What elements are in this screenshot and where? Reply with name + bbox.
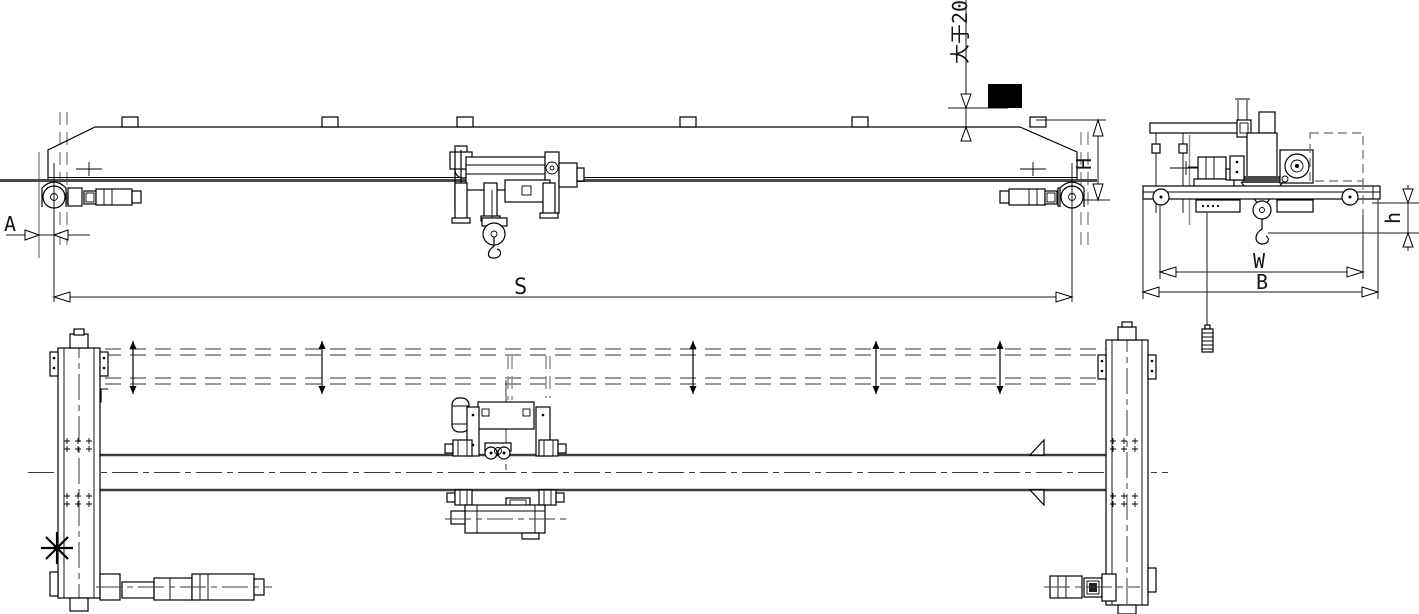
travel-drive-left-plan (96, 574, 272, 600)
festoon-cross-arm (1150, 123, 1247, 133)
dim-label-approach: A (4, 212, 16, 236)
dim-label-carriage-width: B (1256, 270, 1268, 294)
rail-clamp-mark-left (76, 162, 102, 176)
end-carriage-left-plan (41, 329, 272, 612)
travel-drive-right (1009, 189, 1045, 205)
front-elevation-view: 大于200 A S H (0, 0, 1110, 302)
dim-label-span: S (514, 275, 527, 300)
clearance-annotation: 大于200 (948, 0, 1022, 141)
hook-block (482, 218, 507, 258)
end-carriage-right (1000, 163, 1084, 302)
end-carriage-right-plan (1044, 322, 1156, 614)
gusset (1030, 490, 1044, 505)
end-carriage-left (42, 163, 141, 302)
plan-view (28, 322, 1168, 614)
travel-drive-left (96, 189, 132, 205)
gusset (1030, 440, 1044, 455)
dim-label-hook-height: h (1381, 212, 1405, 224)
hook-icon (1256, 219, 1268, 244)
girder-cross-section (1247, 133, 1277, 179)
dim-label-height: H (1072, 158, 1096, 170)
drawing-canvas: 大于200 A S H (0, 0, 1419, 614)
hoist-trolley-elevation (450, 146, 584, 258)
hoist-gearbox-end-view (1280, 150, 1313, 183)
buffer-block (988, 84, 1022, 108)
rail-clamp-mark-right (1020, 162, 1046, 176)
girder-flange-section (1242, 176, 1284, 183)
hoist-motor (559, 163, 577, 187)
festoon-lines (60, 341, 1106, 402)
rail-clamp-mark (1170, 161, 1202, 175)
end-view: W B h (1143, 99, 1419, 352)
trolley-frame (478, 402, 534, 429)
crane-general-arrangement-drawing: 大于200 A S H (0, 0, 1419, 614)
hoist-body-plan (445, 490, 566, 539)
clearance-note-label: 大于200 (948, 0, 972, 64)
festoon-post (1235, 99, 1250, 122)
pendant-control (1202, 213, 1213, 352)
span-dimension: S (54, 275, 1072, 302)
approach-dimension: A (4, 212, 90, 240)
hoist-trolley-plan (445, 380, 566, 539)
girder-plan (28, 440, 1168, 505)
